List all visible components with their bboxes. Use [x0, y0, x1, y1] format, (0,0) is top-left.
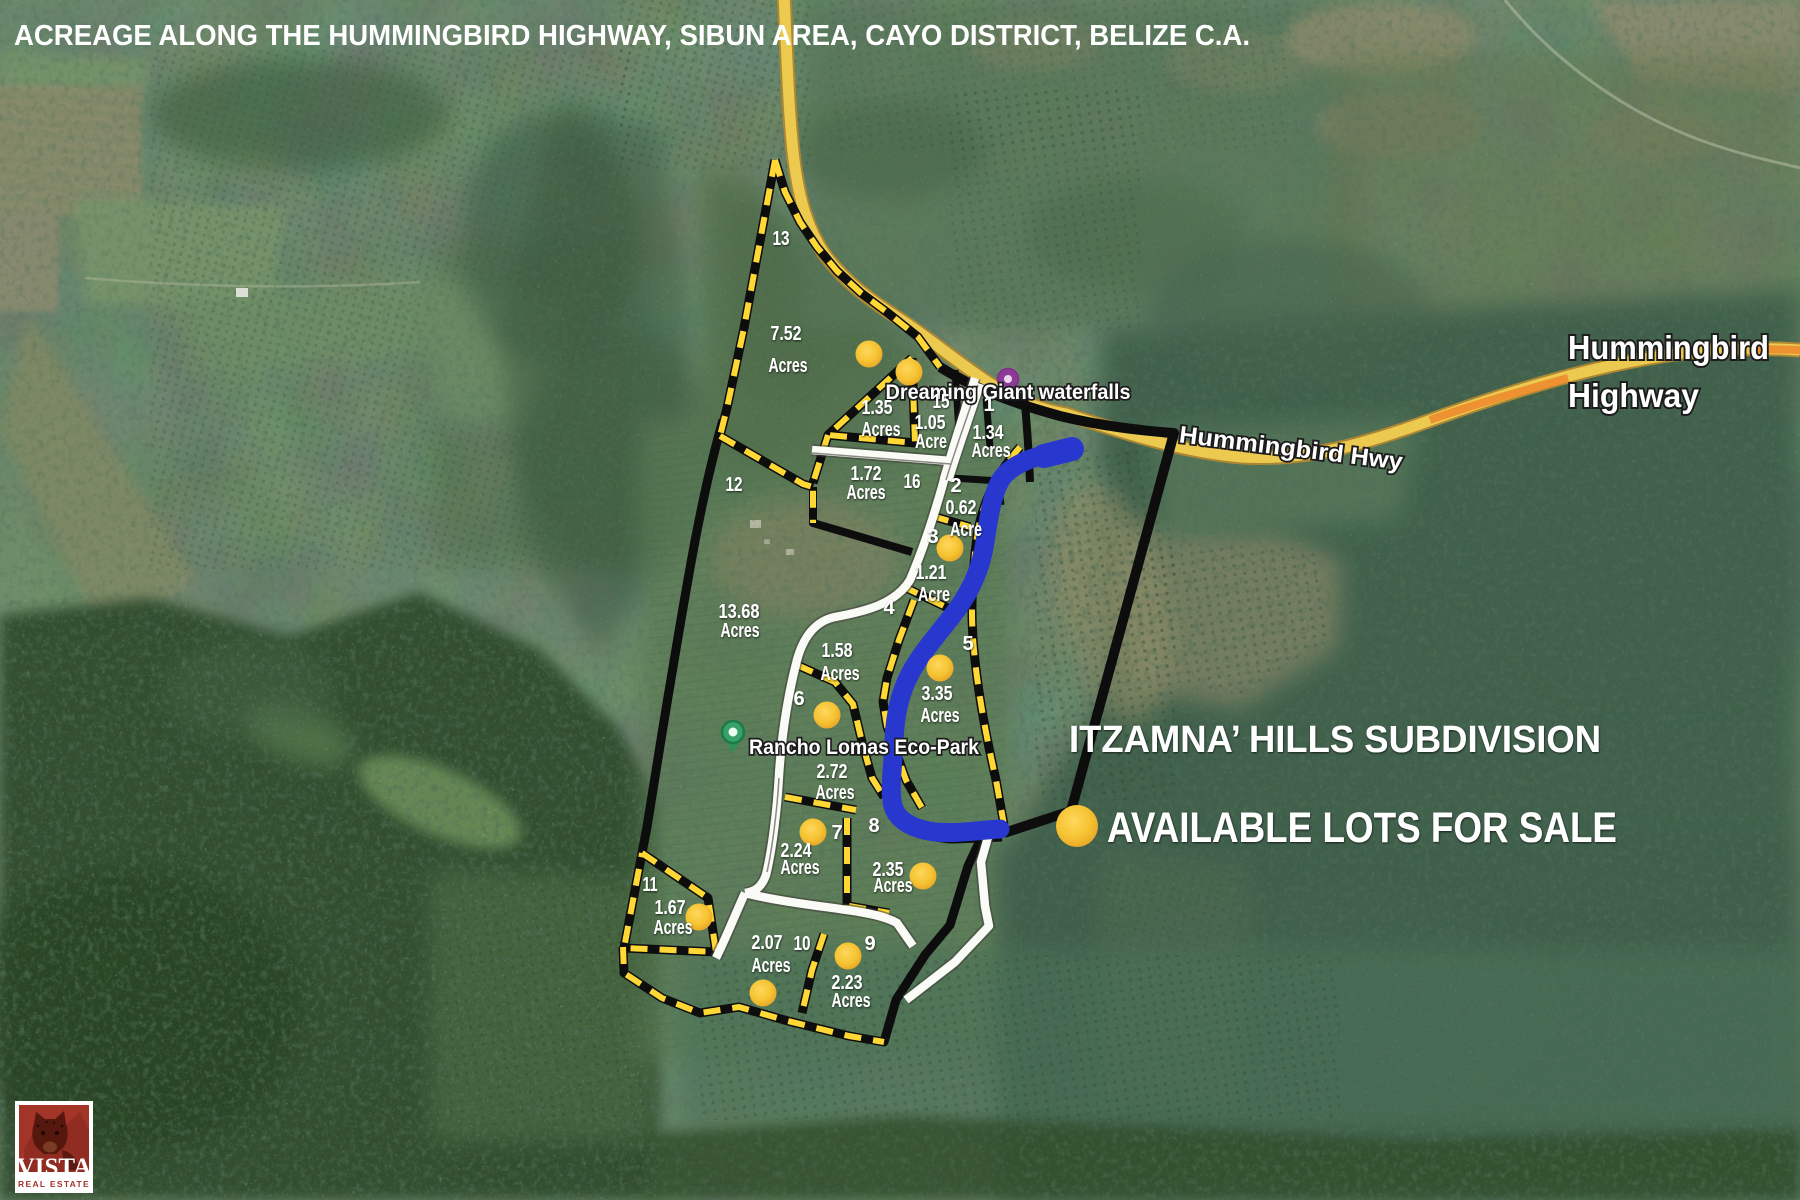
svg-text:2.07: 2.07: [752, 932, 783, 954]
svg-text:9: 9: [864, 933, 875, 955]
svg-text:7.52: 7.52: [771, 323, 802, 345]
svg-text:0.62: 0.62: [946, 497, 977, 519]
svg-text:16: 16: [904, 471, 921, 493]
svg-text:1.67: 1.67: [655, 897, 686, 919]
svg-text:Acres: Acres: [752, 955, 791, 977]
svg-text:1: 1: [983, 394, 994, 416]
svg-text:ACREAGE ALONG THE HUMMINGBIRD: ACREAGE ALONG THE HUMMINGBIRD HIGHWAY, S…: [14, 20, 1250, 52]
svg-text:REAL ESTATE: REAL ESTATE: [18, 1179, 90, 1189]
svg-text:Acres: Acres: [847, 482, 886, 504]
svg-text:Acres: Acres: [721, 620, 760, 642]
svg-text:Acres: Acres: [862, 419, 901, 441]
svg-text:4: 4: [883, 597, 895, 619]
svg-text:2.72: 2.72: [817, 761, 848, 783]
svg-text:1.58: 1.58: [822, 640, 853, 662]
svg-text:Acres: Acres: [781, 857, 820, 879]
svg-text:Acre: Acre: [915, 431, 947, 453]
svg-text:Hummingbird: Hummingbird: [1568, 329, 1769, 366]
svg-text:Acres: Acres: [821, 663, 860, 685]
svg-text:6: 6: [793, 688, 804, 710]
svg-text:Rancho Lomas Eco-Park: Rancho Lomas Eco-Park: [749, 736, 979, 759]
svg-text:11: 11: [643, 874, 658, 896]
svg-text:1.35: 1.35: [862, 397, 893, 419]
svg-text:15: 15: [933, 391, 950, 413]
svg-text:3.35: 3.35: [922, 683, 953, 705]
svg-text:2: 2: [950, 475, 961, 497]
svg-text:AVAILABLE LOTS FOR SALE: AVAILABLE LOTS FOR SALE: [1107, 804, 1617, 852]
svg-text:13: 13: [773, 228, 790, 250]
svg-text:Acres: Acres: [832, 990, 871, 1012]
svg-text:Acres: Acres: [769, 355, 808, 377]
svg-text:Acres: Acres: [874, 875, 913, 897]
svg-text:12: 12: [726, 474, 743, 496]
svg-text:1.21: 1.21: [916, 562, 947, 584]
svg-text:Acre: Acre: [918, 584, 950, 606]
svg-text:7: 7: [831, 822, 842, 844]
svg-text:10: 10: [794, 933, 811, 955]
svg-text:Acre: Acre: [950, 519, 982, 541]
svg-text:ITZAMNA’ HILLS SUBDIVISION: ITZAMNA’ HILLS SUBDIVISION: [1069, 719, 1601, 761]
svg-text:Acres: Acres: [972, 440, 1011, 462]
svg-text:5: 5: [962, 633, 973, 655]
svg-text:Dreaming Giant waterfalls: Dreaming Giant waterfalls: [886, 381, 1131, 404]
svg-text:Acres: Acres: [654, 917, 693, 939]
svg-text:VISTA: VISTA: [17, 1154, 92, 1181]
svg-text:Acres: Acres: [921, 705, 960, 727]
svg-text:Acres: Acres: [816, 782, 855, 804]
svg-text:Highway: Highway: [1568, 377, 1700, 414]
svg-text:3: 3: [927, 526, 938, 548]
svg-text:8: 8: [868, 815, 879, 837]
